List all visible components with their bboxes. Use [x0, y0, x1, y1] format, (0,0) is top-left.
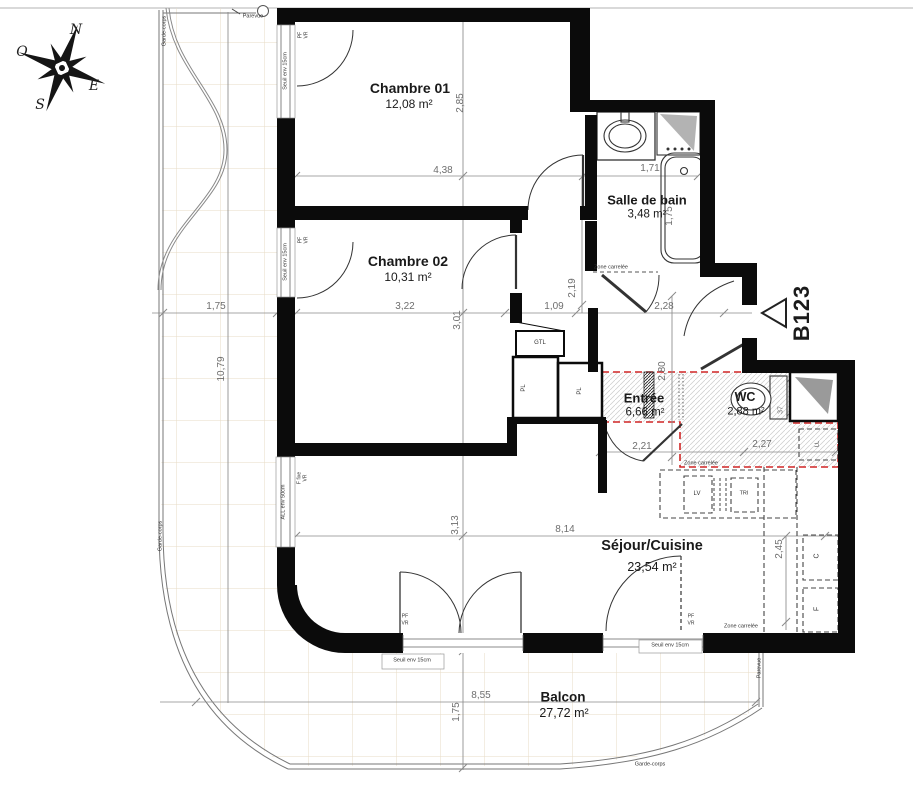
fridge-f [803, 588, 838, 632]
closet-label: PL [577, 387, 583, 394]
dishwasher-label: LV [694, 491, 701, 497]
room-label-balcon: Balcon [540, 690, 585, 704]
window-type-note: PF [402, 615, 408, 620]
bin-label: TRI [740, 491, 749, 497]
cooker-label: C [814, 553, 821, 558]
dim-entree-width: 2,21 [632, 442, 651, 452]
parevue-note: Parevue [757, 658, 763, 679]
dim-kitchen-height: 2,45 [775, 539, 785, 558]
window-shutter-note: VR [305, 237, 310, 244]
compass-north-label: N [70, 23, 82, 37]
guardrail-note: Garde-corps [635, 762, 666, 768]
window-shutter-note: VR [305, 32, 310, 39]
fridge-label: F [814, 607, 821, 611]
window-shutter-note: VR [402, 622, 409, 627]
window-sill-note: Seuil env 15cm [393, 658, 431, 664]
pl-closet-1 [513, 357, 558, 418]
sink-basin [604, 120, 646, 152]
room-area-chambre02: 10,31 m² [384, 271, 431, 283]
unit-number-label: B123 [791, 285, 813, 342]
zone-carrelee-note: Zone carrelée [594, 265, 628, 271]
room-area-entree: 6,66 m² [626, 407, 665, 419]
room-label-salle-de-bain: Salle de bain [607, 194, 686, 207]
floor-plan: Chambre 01 12,08 m² Chambre 02 10,31 m² … [0, 0, 913, 800]
guardrail-note: Garde-corps [158, 521, 164, 552]
dim-balcon-left-width: 1,75 [206, 302, 225, 312]
dim-ch01-height: 2,85 [456, 93, 466, 112]
window-type-note: PF [688, 615, 694, 620]
compass-south-label: S [35, 98, 45, 112]
room-area-sejour-cuisine: 23,54 m² [627, 561, 676, 574]
dim-hall-depth: 2,28 [654, 302, 673, 312]
closet-label: PL [521, 384, 527, 391]
room-label-chambre02: Chambre 02 [368, 254, 448, 268]
dim-balcon-left-height: 10,79 [217, 356, 227, 381]
compass-rose [3, 9, 121, 127]
window-sill-note: Seuil env 15cm [283, 243, 289, 281]
parevue-note: Parevue [243, 14, 264, 20]
dim-wc-small: 37 [778, 406, 785, 414]
cooker-c [803, 535, 838, 580]
room-label-entree: Entrée [624, 392, 664, 405]
dim-wc-width: 2,27 [752, 440, 771, 450]
room-area-wc: 2,88 m² [727, 407, 764, 418]
zone-carrelee-note: Zone carrelée [684, 461, 718, 467]
dim-ch02-width: 3,22 [395, 302, 414, 312]
floor-plan-drawing [0, 0, 913, 800]
dim-entree-height: 2,80 [658, 361, 668, 380]
dim-sejour-height: 3,13 [451, 515, 461, 534]
guardrail-note: Garde-corps [162, 16, 168, 47]
room-area-salle-de-bain: 3,48 m² [628, 209, 667, 221]
compass-east-label: E [89, 79, 99, 93]
dim-sejour-width: 8,14 [555, 525, 574, 535]
room-area-chambre01: 12,08 m² [385, 98, 432, 110]
zone-carrelee-note: Zone carrelée [724, 624, 758, 630]
room-label-sejour-cuisine: Séjour/Cuisine [601, 539, 703, 554]
window-shutter-note: VR [688, 622, 695, 627]
dim-balcon-width: 8,55 [471, 691, 490, 701]
gtl-label: GTL [534, 340, 546, 346]
compass-west-label: O [16, 45, 27, 59]
window-sill-note: Seuil env 15cm [283, 52, 289, 90]
room-area-balcon: 27,72 m² [539, 707, 588, 720]
washer-label: LL [815, 441, 821, 447]
window-shutter-note: VR [304, 475, 309, 482]
dim-ch02-height: 3,01 [453, 310, 463, 329]
entrance-marker-triangle [762, 299, 786, 327]
window-allege-note: ALL env 50cm [281, 485, 287, 520]
room-label-wc: WC [735, 391, 756, 404]
room-label-chambre01: Chambre 01 [370, 81, 450, 95]
dim-hall-width: 1,09 [544, 302, 563, 312]
dim-ch01-width: 4,38 [433, 166, 452, 176]
dim-sdb-width: 1,71 [640, 164, 659, 174]
walls [277, 8, 855, 653]
dim-balcon-height: 1,75 [452, 702, 462, 721]
dim-tub-height: 1,75 [665, 206, 675, 225]
window-sill-note: Seuil env 15cm [651, 643, 689, 649]
dim-hall-height: 2,19 [568, 278, 578, 297]
